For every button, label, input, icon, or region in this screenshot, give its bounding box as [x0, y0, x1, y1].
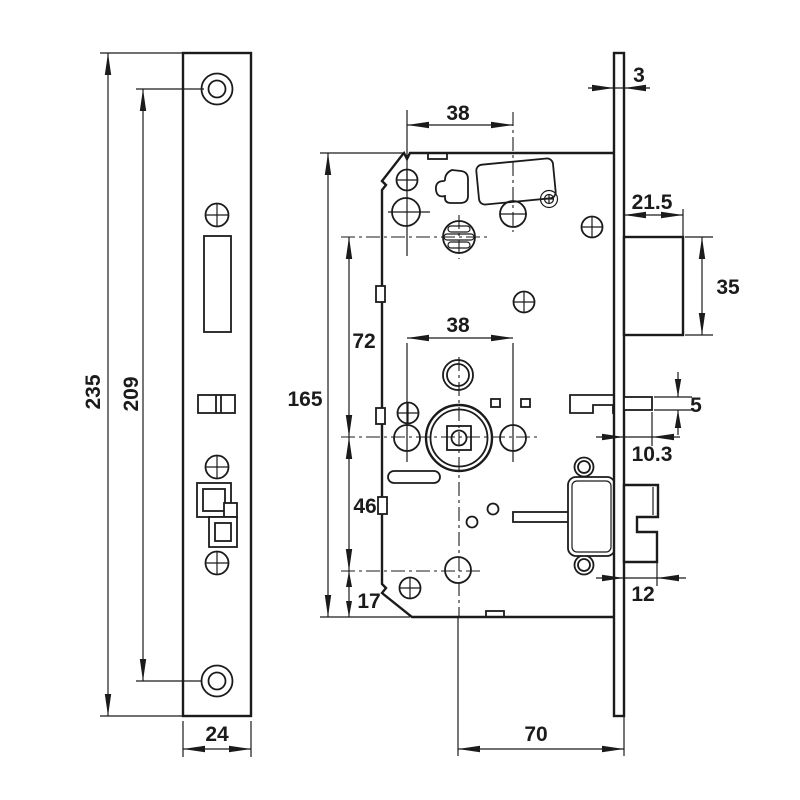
dim-label-46: 46: [353, 495, 376, 518]
dim-label-38-top: 38: [446, 102, 470, 125]
deadbolt-body: [568, 458, 615, 575]
pin-hole: [488, 504, 499, 515]
deadbolt-projection: [624, 485, 658, 562]
dim-label-165: 165: [287, 388, 322, 411]
dim-label-235: 235: [82, 374, 105, 409]
dim-label-72: 72: [352, 330, 375, 353]
dim-label-3: 3: [633, 64, 645, 87]
screw-cross-icon: [206, 552, 229, 575]
small-port: [521, 399, 530, 407]
dim-label-10-3: 10.3: [632, 443, 673, 466]
lower-fixing-hole: [445, 557, 471, 583]
dim-label-209: 209: [120, 376, 143, 411]
mortise-lock-drawing-canvas: 235 209 24 38: [0, 0, 800, 800]
case-edge-clip: [378, 497, 387, 514]
dim-faceplate-width-24: 24: [183, 721, 251, 757]
screw-cross-icon: [582, 217, 603, 238]
screw-cross-icon: [398, 403, 419, 424]
forend-side-view: [614, 53, 683, 716]
dim-label-38-mid: 38: [446, 314, 470, 337]
dim-deadlatch-projection-10-3: 10.3: [596, 412, 680, 466]
screw-cross-icon: [206, 204, 229, 227]
guide-roller: [443, 360, 473, 390]
dim-label-5: 5: [690, 394, 702, 417]
deadbolt-link-bar: [513, 512, 570, 522]
dim-label-35: 35: [716, 276, 740, 299]
dim-label-24: 24: [205, 723, 229, 746]
deadlatch-body: [570, 395, 619, 413]
deadlatch-pin: [624, 397, 652, 410]
faceplate-outline: [183, 53, 251, 716]
slot-cutout: [388, 471, 440, 483]
dim-latchbolt-height-35: 35: [685, 237, 740, 335]
screw-cross-icon: [400, 578, 421, 599]
case-edge-clip: [376, 408, 385, 424]
screw-cross-icon: [206, 456, 229, 479]
case-edge-clip: [376, 286, 385, 302]
pin-hole: [467, 517, 478, 528]
dim-label-17: 17: [357, 590, 380, 613]
dim-latchbolt-projection-21-5: 21.5: [624, 191, 683, 236]
technical-drawing-page: 235 209 24 38: [0, 0, 800, 800]
forend-plate: [614, 53, 624, 716]
case-top-notch: [428, 153, 447, 159]
dim-spindle-hole-spacing-38: 38: [407, 314, 513, 462]
dim-label-12: 12: [631, 583, 654, 606]
dim-deadbolt-projection-12: 12: [596, 562, 686, 606]
small-port: [491, 399, 500, 407]
lock-case-side-view: [376, 153, 619, 617]
cam-cutout: [436, 170, 468, 203]
dim-deadlatch-height-5: 5: [654, 372, 702, 435]
dim-label-70: 70: [524, 723, 547, 746]
latchbolt-side: [624, 237, 683, 335]
screw-cross-icon: [514, 292, 535, 313]
faceplate-front-view: [183, 53, 251, 716]
dim-label-21-5: 21.5: [632, 191, 673, 214]
